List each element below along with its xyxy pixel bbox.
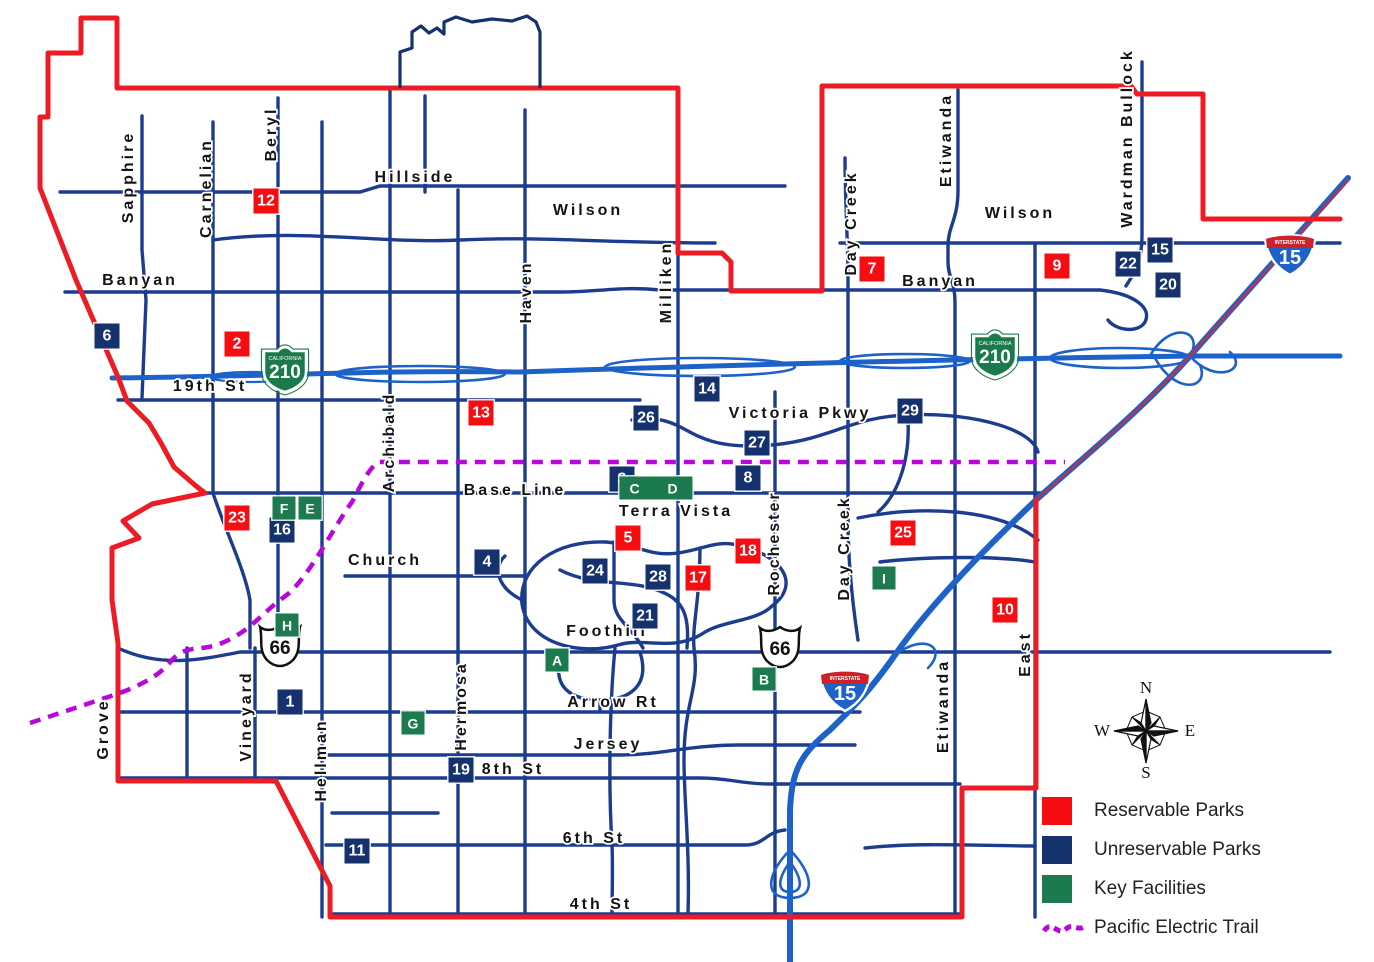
legend-item-facilities: Key Facilities (1042, 874, 1261, 904)
street-label-haven: Haven (518, 260, 535, 323)
park-marker-a[interactable]: A (546, 649, 569, 672)
park-marker-15[interactable]: 15 (1148, 238, 1173, 263)
park-marker-13[interactable]: 13 (469, 401, 494, 426)
street-label-east: East (1017, 631, 1034, 677)
park-marker-12[interactable]: 12 (254, 189, 279, 214)
park-marker-17[interactable]: 17 (686, 566, 711, 591)
park-marker-18[interactable]: 18 (736, 539, 761, 564)
legend-item-unreservable: Unreservable Parks (1042, 835, 1261, 865)
park-marker-f[interactable]: F (273, 497, 296, 520)
svg-text:15: 15 (834, 683, 856, 705)
park-marker-5[interactable]: 5 (616, 526, 641, 551)
compass-east: E (1185, 721, 1195, 740)
svg-text:INTERSTATE: INTERSTATE (1275, 240, 1306, 246)
parks-map: SapphireCarnelianBerylHillsideWilsonWils… (0, 0, 1374, 962)
park-marker-23[interactable]: 23 (225, 506, 250, 531)
park-marker-11[interactable]: 11 (345, 839, 370, 864)
park-marker-20[interactable]: 20 (1156, 273, 1181, 298)
city-boundary (40, 18, 1340, 917)
park-marker-22[interactable]: 22 (1116, 252, 1141, 277)
street-label-day-creek: Day Creek (843, 170, 860, 275)
park-marker-21[interactable]: 21 (633, 604, 658, 629)
route-shields-layer: CALIFORNIA210CALIFORNIA2106666INTERSTATE… (260, 235, 1315, 711)
street-label-carnelian: Carnelian (198, 138, 215, 238)
street-label-hellman: Hellman (313, 718, 330, 801)
street-label-wardman-bullock: Wardman Bullock (1119, 48, 1136, 228)
svg-text:210: 210 (979, 347, 1011, 368)
park-marker-g[interactable]: G (402, 712, 425, 735)
park-marker-28[interactable]: 28 (646, 565, 671, 590)
street-label-8th-st: 8th St (482, 761, 544, 778)
street-label-19th-st: 19th St (173, 378, 247, 395)
svg-text:66: 66 (769, 639, 790, 660)
street-label-6th-st: 6th St (563, 830, 625, 847)
trail-dash-icon (1042, 915, 1086, 941)
pacific-electric-trail (30, 462, 1065, 723)
park-marker-2[interactable]: 2 (225, 332, 250, 357)
street-label-base-line: Base Line (464, 482, 567, 499)
street-label-day-creek: Day Creek (836, 495, 853, 600)
legend-item-reservable: Reservable Parks (1042, 796, 1261, 826)
legend-label: Key Facilities (1094, 878, 1206, 900)
street-label-victoria-pkwy: Victoria Pkwy (729, 405, 872, 422)
i15-route-shield-15: INTERSTATE15 (1265, 235, 1315, 275)
park-marker-26[interactable]: 26 (634, 406, 659, 431)
street-label-hermosa: Hermosa (453, 661, 470, 750)
street-label-jersey: Jersey (574, 736, 643, 753)
street-label-terra-vista: Terra Vista (619, 503, 733, 520)
north-boundary-jut (400, 16, 540, 88)
park-marker-6[interactable]: 6 (95, 324, 120, 349)
park-marker-29[interactable]: 29 (898, 399, 923, 424)
legend-label: Reservable Parks (1094, 800, 1244, 822)
park-marker-14[interactable]: 14 (695, 377, 720, 402)
road-network (60, 62, 1340, 917)
park-marker-c-d[interactable]: C D (619, 477, 692, 500)
street-label-vineyard: Vineyard (238, 670, 255, 761)
svg-text:INTERSTATE: INTERSTATE (830, 676, 861, 682)
park-marker-b[interactable]: B (753, 668, 776, 691)
compass-north: N (1140, 678, 1152, 697)
svg-text:210: 210 (269, 362, 301, 383)
street-label-rochester: Rochester (766, 490, 783, 595)
park-marker-1[interactable]: 1 (278, 690, 303, 715)
park-marker-24[interactable]: 24 (583, 559, 608, 584)
park-marker-4[interactable]: 4 (475, 550, 500, 575)
street-label-banyan: Banyan (902, 273, 978, 290)
compass-south: S (1141, 763, 1150, 782)
park-marker-h[interactable]: H (276, 614, 299, 637)
park-marker-e[interactable]: E (299, 497, 322, 520)
unreservable-swatch (1042, 836, 1072, 864)
legend-label: Unreservable Parks (1094, 839, 1261, 861)
street-label-grove: Grove (95, 698, 112, 759)
us-route-shield-66: 66 (760, 627, 800, 667)
reservable-swatch (1042, 797, 1072, 825)
legend-label: Pacific Electric Trail (1094, 917, 1259, 939)
street-label-etiwanda: Etiwanda (935, 659, 952, 753)
map-legend: Reservable Parks Unreservable Parks Key … (1042, 796, 1261, 952)
street-label-wilson: Wilson (553, 202, 623, 219)
compass-west: W (1094, 721, 1111, 740)
facilities-swatch (1042, 875, 1072, 903)
ca-route-shield-210: CALIFORNIA210 (971, 330, 1018, 380)
street-label-banyan: Banyan (102, 272, 178, 289)
street-label-church: Church (348, 552, 422, 569)
park-marker-19[interactable]: 19 (449, 758, 474, 783)
park-marker-10[interactable]: 10 (993, 598, 1018, 623)
street-label-hillside: Hillside (375, 169, 456, 186)
legend-item-trail: Pacific Electric Trail (1042, 913, 1261, 943)
street-label-milliken: Milliken (658, 241, 675, 324)
street-label-arrow-rt: Arrow Rt (567, 694, 659, 711)
street-label-etiwanda: Etiwanda (938, 93, 955, 187)
street-label-wilson: Wilson (985, 205, 1055, 222)
street-label-archibald: Archibald (381, 392, 398, 493)
svg-text:15: 15 (1279, 247, 1301, 269)
park-marker-7[interactable]: 7 (860, 257, 885, 282)
park-marker-27[interactable]: 27 (745, 431, 770, 456)
park-marker-i[interactable]: I (873, 567, 896, 590)
park-marker-16[interactable]: 16 (270, 518, 295, 543)
park-marker-25[interactable]: 25 (891, 521, 916, 546)
street-label-4th-st: 4th St (570, 896, 632, 913)
park-marker-9[interactable]: 9 (1045, 254, 1070, 279)
street-label-sapphire: Sapphire (120, 131, 137, 223)
park-marker-8[interactable]: 8 (736, 466, 761, 491)
svg-text:66: 66 (269, 638, 290, 659)
i15-route-shield-15: INTERSTATE15 (820, 671, 870, 711)
ca-route-shield-210: CALIFORNIA210 (261, 345, 308, 395)
street-label-beryl: Beryl (263, 106, 280, 161)
compass-rose: N E S W (1094, 678, 1195, 782)
